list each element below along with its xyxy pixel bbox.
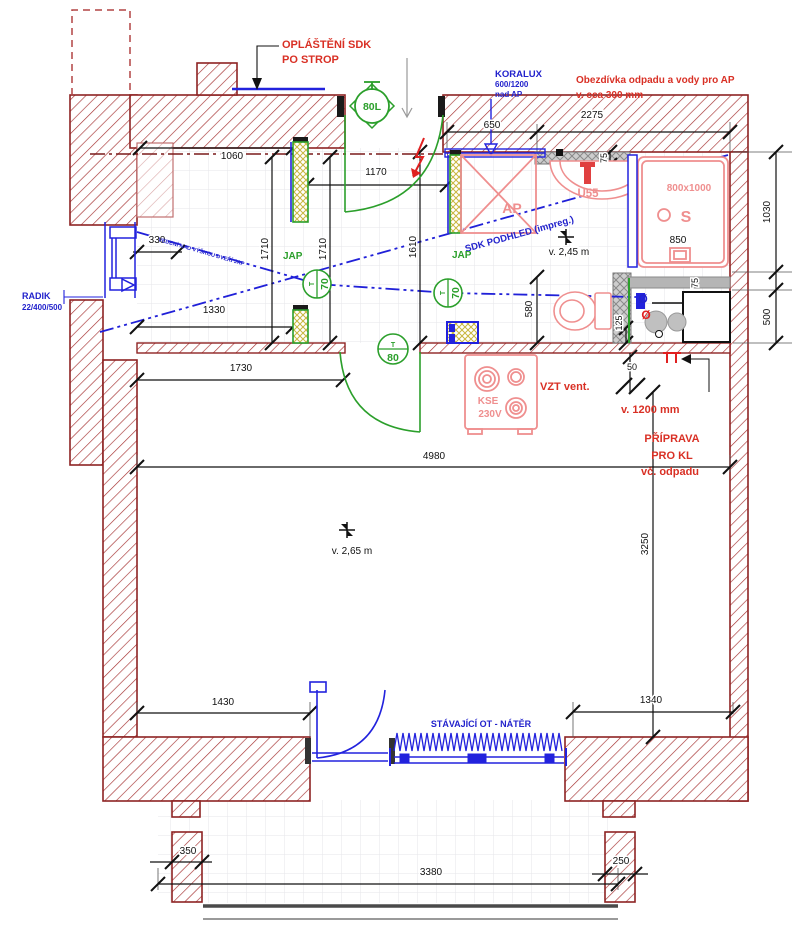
dim-50: 50 (627, 362, 637, 372)
dim-580: 580 (524, 300, 535, 317)
jap-right-label: JAP (452, 250, 472, 261)
door-size-label: 70 (319, 278, 331, 290)
door-t-label: T (391, 342, 396, 349)
dim-1730: 1730 (230, 363, 253, 374)
vent-mark (556, 149, 563, 156)
dim-650: 650 (484, 120, 501, 131)
door-size-label: 80 (387, 352, 399, 364)
floor-plan: T 70 T 70 T 80 (0, 0, 800, 926)
interior-walls (137, 343, 730, 353)
ap-label: AP (502, 200, 521, 216)
toilet (554, 292, 611, 330)
obezdivka-line2: v. cca 300 mm (576, 90, 643, 101)
section-leader (402, 58, 412, 117)
dashed-outline (72, 10, 130, 95)
dim-3380: 3380 (420, 867, 443, 878)
priprava-line1: PŘÍPRAVA (644, 432, 699, 445)
valve-blue-label: Ø (638, 292, 647, 306)
door-size-label: 70 (450, 287, 462, 299)
height-marker-265 (339, 522, 355, 538)
shower-partition-wall (628, 155, 637, 267)
dim-1030: 1030 (762, 200, 773, 223)
valve-red-label: Ø (641, 308, 650, 322)
dim-1610: 1610 (408, 235, 419, 258)
height-265: v. 2,65 m (332, 546, 372, 557)
shower-label: S (681, 209, 692, 226)
dim-125: 125 (614, 315, 624, 330)
dim-250: 250 (613, 856, 630, 867)
dim-1170: 1170 (365, 167, 387, 178)
priprava-line3: vč. odpadu (641, 466, 699, 478)
v1200-note: v. 1200 mm (621, 404, 680, 416)
boiler-label: 80L (363, 101, 382, 113)
koralux-line2: 600/1200 (495, 80, 529, 89)
balcony-door (310, 682, 388, 761)
stove-label2: 230V (478, 409, 502, 420)
oplasteni-line2: PO STROP (282, 54, 339, 66)
stove-label1: KSE (478, 396, 499, 407)
stove (465, 355, 537, 434)
dim-75-top: 75 (599, 153, 609, 163)
dim-2275: 2275 (581, 110, 604, 121)
door-t-label: T (309, 281, 316, 286)
vzt-note: VZT vent. (540, 381, 590, 393)
koralux-line3: nad AP (495, 90, 523, 99)
door-marker-left: T 70 (303, 270, 331, 298)
shower-size-label: 800x1000 (667, 183, 712, 194)
dim-500: 500 (762, 308, 773, 325)
door-marker-living: T 80 (378, 334, 408, 364)
koralux-line1: KORALUX (495, 69, 543, 80)
kl-symbol (663, 353, 681, 363)
bottom-window-radiator (390, 733, 566, 766)
dim-1710b: 1710 (318, 237, 329, 260)
left-window-radiator (64, 222, 136, 304)
radik-line2: 22/400/500 (22, 303, 63, 312)
dim-1430: 1430 (212, 697, 235, 708)
stavajici-ot-note: STÁVAJÍCÍ OT - NÁTĚR (431, 718, 532, 729)
dim-1060: 1060 (221, 151, 244, 162)
door-t-label: T (440, 290, 447, 295)
dim-350: 350 (180, 846, 197, 857)
dim-1330: 1330 (203, 305, 226, 316)
dim-1340: 1340 (640, 695, 663, 706)
dim-75-kitchen: 75 (690, 278, 700, 288)
oplasteni-leader (252, 46, 279, 90)
priprava-leader (681, 354, 709, 392)
jap-left-label: JAP (283, 251, 303, 262)
radik-line1: RADIK (22, 291, 51, 301)
balcony-slab (203, 906, 618, 919)
floor-plan-svg: T 70 T 70 T 80 (0, 0, 800, 926)
washbasin-label: U55 (577, 188, 599, 200)
oplasteni-line1: OPLÁŠTĚNÍ SDK (282, 38, 371, 51)
dim-3250: 3250 (640, 532, 651, 555)
obezdivka-line1: Obezdívka odpadu a vody pro AP (576, 75, 735, 86)
dim-4980: 4980 (423, 451, 446, 462)
dim-850: 850 (670, 235, 687, 246)
dim-1710a: 1710 (260, 237, 271, 260)
priprava-line2: PRO KL (651, 450, 693, 462)
height-245: v. 2,45 m (549, 247, 589, 258)
door-marker-right: T 70 (434, 279, 462, 307)
